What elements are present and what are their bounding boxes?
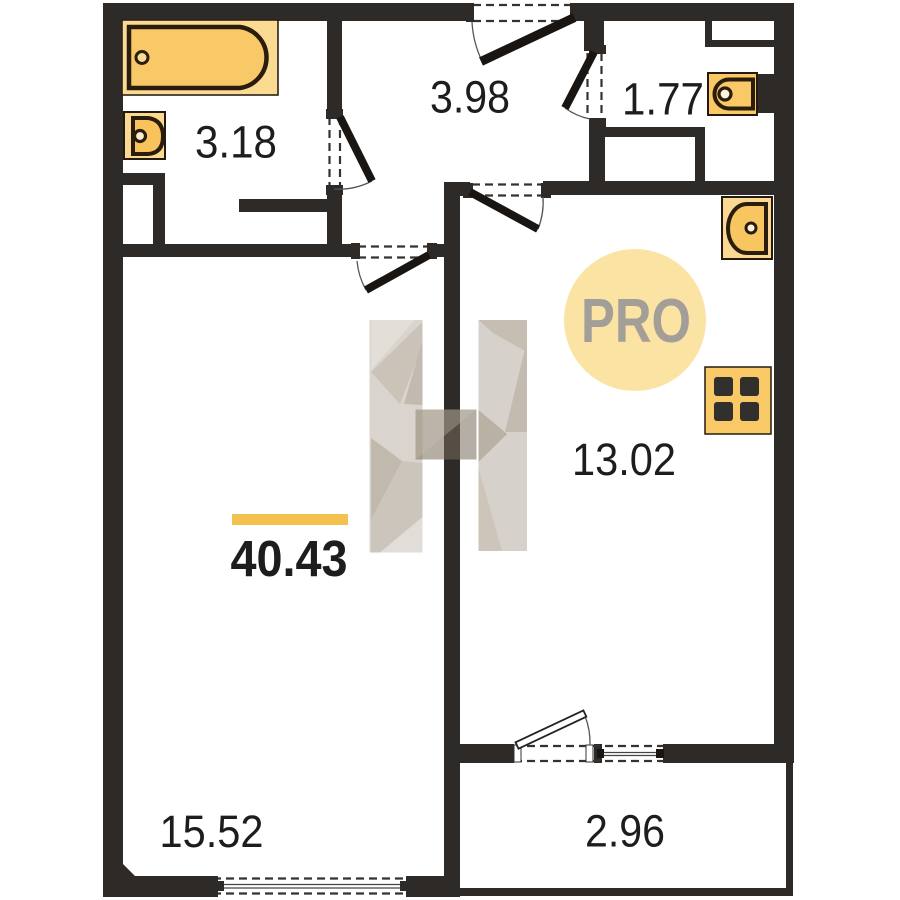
svg-text:1.77: 1.77	[622, 74, 704, 125]
svg-text:13.02: 13.02	[572, 434, 676, 485]
svg-text:3.98: 3.98	[430, 72, 510, 123]
svg-text:15.52: 15.52	[160, 806, 264, 857]
svg-text:3.18: 3.18	[195, 117, 277, 168]
svg-text:2.96: 2.96	[585, 806, 665, 857]
svg-text:PRO: PRO	[581, 287, 691, 356]
svg-text:40.43: 40.43	[231, 530, 348, 587]
